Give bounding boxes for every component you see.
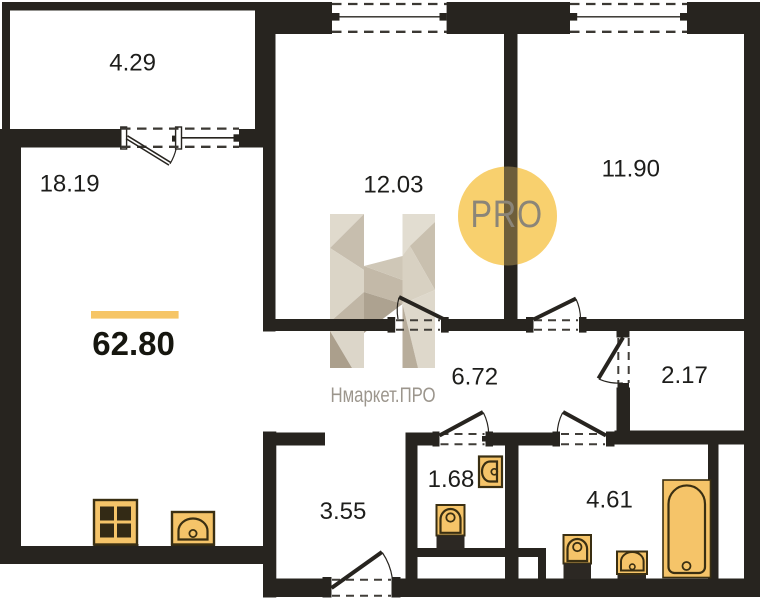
svg-text:62.80: 62.80 <box>92 325 175 362</box>
svg-text:Нмаркет.ПРО: Нмаркет.ПРО <box>330 384 435 407</box>
svg-text:2.17: 2.17 <box>661 362 708 389</box>
svg-text:4.29: 4.29 <box>109 50 156 77</box>
svg-text:1.68: 1.68 <box>428 466 475 493</box>
svg-text:18.19: 18.19 <box>40 171 100 198</box>
svg-text:4.61: 4.61 <box>586 486 633 513</box>
svg-text:11.90: 11.90 <box>602 156 660 183</box>
svg-text:PRO: PRO <box>470 194 543 236</box>
svg-text:6.72: 6.72 <box>451 363 498 390</box>
svg-text:12.03: 12.03 <box>363 172 423 199</box>
svg-text:3.55: 3.55 <box>320 498 367 525</box>
